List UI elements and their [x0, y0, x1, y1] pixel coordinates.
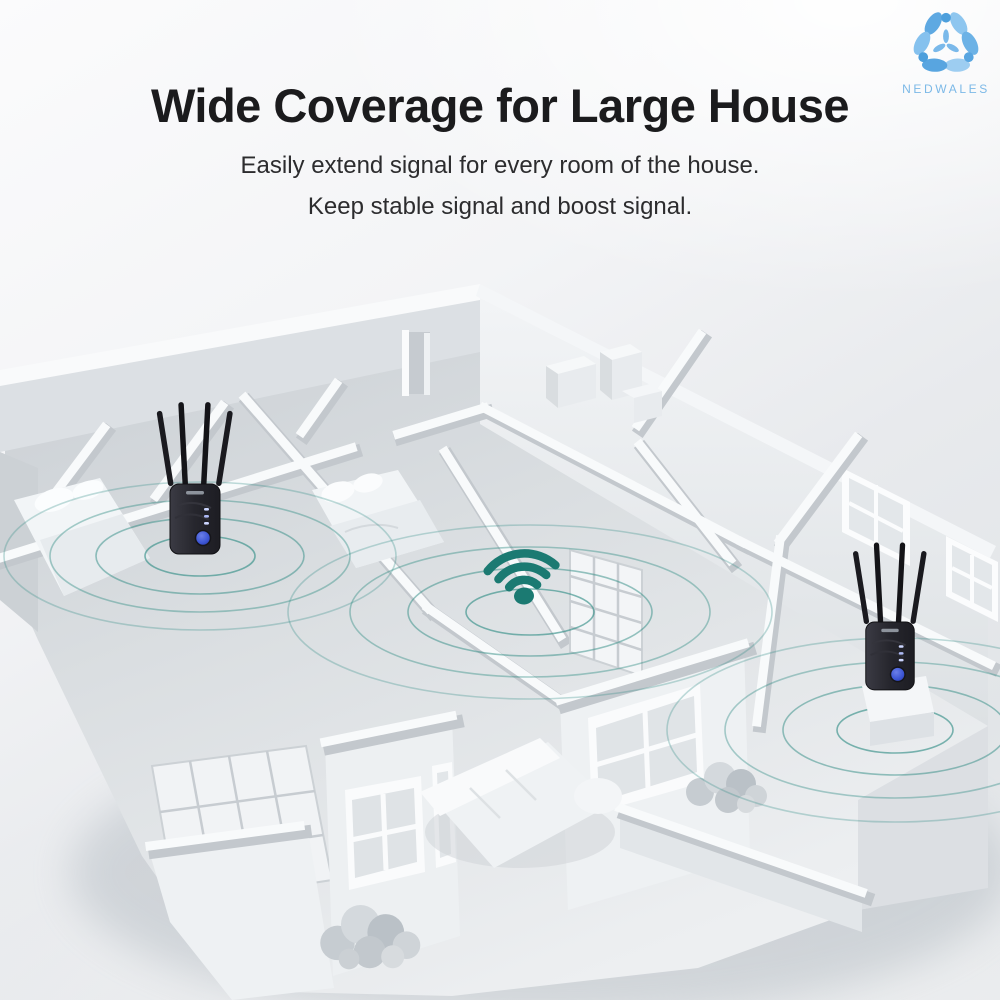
house-floorplan-illustration: [0, 0, 1000, 1000]
back-door-frame: [402, 330, 430, 396]
nedwales-flower-icon: [904, 8, 988, 80]
subtitle-line-1: Easily extend signal for every room of t…: [0, 152, 1000, 180]
marketing-page: NEDWALES Wide Coverage for Large House E…: [0, 0, 1000, 1000]
subtitle-line-2: Keep stable signal and boost signal.: [0, 193, 1000, 221]
front-left-terrace: [150, 826, 334, 1000]
page-title: Wide Coverage for Large House: [0, 78, 1000, 133]
